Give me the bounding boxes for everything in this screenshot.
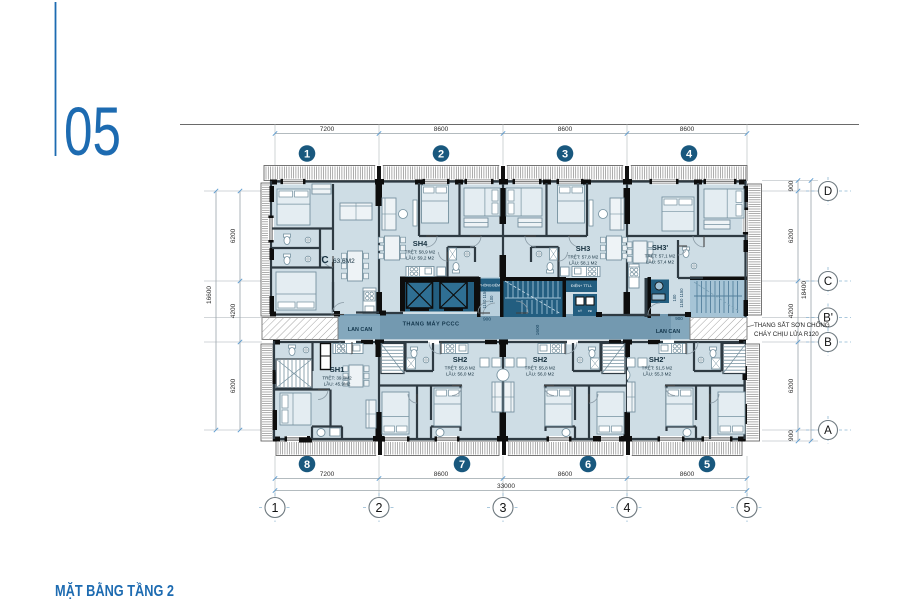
svg-text:5: 5	[744, 501, 751, 515]
svg-text:TRỆT: 57,1 M2: TRỆT: 57,1 M2	[645, 252, 676, 259]
svg-text:A: A	[824, 425, 832, 437]
svg-text:8600: 8600	[558, 126, 573, 133]
svg-text:1150 1150: 1150 1150	[482, 289, 487, 309]
svg-text:TRỆT: 57,8 M2: TRỆT: 57,8 M2	[568, 253, 599, 260]
svg-text:D: D	[824, 186, 832, 198]
svg-text:SH1: SH1	[330, 365, 345, 374]
svg-text:8: 8	[304, 459, 310, 471]
svg-text:63,6M2: 63,6M2	[333, 258, 355, 265]
svg-text:5: 5	[704, 459, 710, 471]
svg-text:TRỆT: 51,5 M2: TRỆT: 51,5 M2	[642, 364, 673, 371]
svg-text:6200: 6200	[230, 378, 237, 393]
svg-text:LẦU: 59,2 M2: LẦU: 59,2 M2	[406, 255, 435, 261]
svg-text:4: 4	[686, 148, 693, 160]
svg-text:4200: 4200	[788, 303, 795, 318]
svg-text:LẦU: 56,0 M2: LẦU: 56,0 M2	[446, 371, 475, 377]
svg-text:LAN CAN: LAN CAN	[348, 327, 372, 333]
svg-text:1600: 1600	[535, 324, 541, 335]
svg-text:2: 2	[376, 501, 383, 515]
svg-text:THANG SẮT SƠN CHỐNG: THANG SẮT SƠN CHỐNG	[754, 321, 830, 329]
svg-text:100: 100	[672, 294, 677, 302]
svg-text:THANG MÁY PCCC: THANG MÁY PCCC	[403, 321, 460, 328]
svg-text:18400: 18400	[801, 281, 808, 299]
svg-text:LẦU: 56,0 M2: LẦU: 56,0 M2	[526, 371, 555, 377]
svg-text:TRỆT: 58,9 M2: TRỆT: 58,9 M2	[405, 248, 436, 255]
svg-text:3: 3	[500, 501, 507, 515]
svg-text:1: 1	[304, 148, 310, 160]
svg-text:LẦU: 58,1 M2: LẦU: 58,1 M2	[569, 260, 598, 266]
svg-text:8600: 8600	[434, 126, 449, 133]
svg-text:1150 1150: 1150 1150	[679, 288, 684, 308]
svg-text:KỸ: KỸ	[578, 308, 582, 313]
svg-text:C: C	[824, 276, 832, 288]
svg-text:SH2: SH2	[533, 355, 548, 364]
svg-text:6200: 6200	[788, 228, 795, 243]
svg-text:8600: 8600	[558, 471, 573, 478]
svg-text:3: 3	[562, 148, 568, 160]
svg-text:900: 900	[483, 317, 491, 323]
svg-text:8600: 8600	[680, 126, 695, 133]
svg-text:C: C	[321, 255, 328, 266]
svg-text:1: 1	[272, 501, 279, 515]
svg-text:2: 2	[438, 148, 444, 160]
svg-text:TRỆT: 55,8 M2: TRỆT: 55,8 M2	[445, 364, 476, 371]
svg-text:LẦU: 55,3 M2: LẦU: 55,3 M2	[643, 371, 672, 377]
svg-text:7: 7	[459, 459, 465, 471]
svg-text:7200: 7200	[320, 126, 335, 133]
svg-text:4200: 4200	[230, 303, 237, 318]
svg-text:6200: 6200	[230, 228, 237, 243]
svg-text:SH3: SH3	[576, 244, 591, 253]
svg-text:900: 900	[788, 430, 795, 441]
svg-text:SH2': SH2'	[649, 355, 666, 364]
svg-text:B: B	[824, 337, 832, 349]
svg-text:LẦU: 45,9M2: LẦU: 45,9M2	[324, 381, 351, 387]
svg-text:900: 900	[675, 316, 683, 321]
svg-text:CHÁY CHỊU LỬA R120: CHÁY CHỊU LỬA R120	[754, 331, 819, 338]
svg-text:33000: 33000	[497, 483, 515, 490]
svg-text:8600: 8600	[680, 471, 695, 478]
svg-text:SH3': SH3'	[652, 243, 669, 252]
svg-text:SH2: SH2	[453, 355, 468, 364]
svg-text:TRỆT: 55,8 M2: TRỆT: 55,8 M2	[525, 364, 556, 371]
svg-text:LAN CAN: LAN CAN	[656, 329, 680, 335]
svg-text:TRỆT: 39,0M2: TRỆT: 39,0M2	[322, 374, 352, 381]
svg-text:4: 4	[624, 501, 631, 515]
svg-text:05: 05	[64, 93, 121, 170]
svg-text:6: 6	[585, 459, 591, 471]
svg-text:LẦU: 57,4 M2: LẦU: 57,4 M2	[646, 259, 675, 265]
svg-text:SH4: SH4	[413, 239, 428, 248]
svg-text:900: 900	[788, 180, 795, 191]
svg-text:16600: 16600	[206, 286, 213, 304]
svg-text:ĐIỆN+ TTLL: ĐIỆN+ TTLL	[571, 283, 592, 288]
svg-text:7200: 7200	[320, 471, 335, 478]
svg-text:6200: 6200	[788, 378, 795, 393]
svg-text:PHÒNG ĐỆM: PHÒNG ĐỆM	[479, 283, 500, 288]
svg-text:MẶT BẰNG TẦNG 2: MẶT BẰNG TẦNG 2	[55, 582, 174, 600]
svg-text:8600: 8600	[434, 471, 449, 478]
